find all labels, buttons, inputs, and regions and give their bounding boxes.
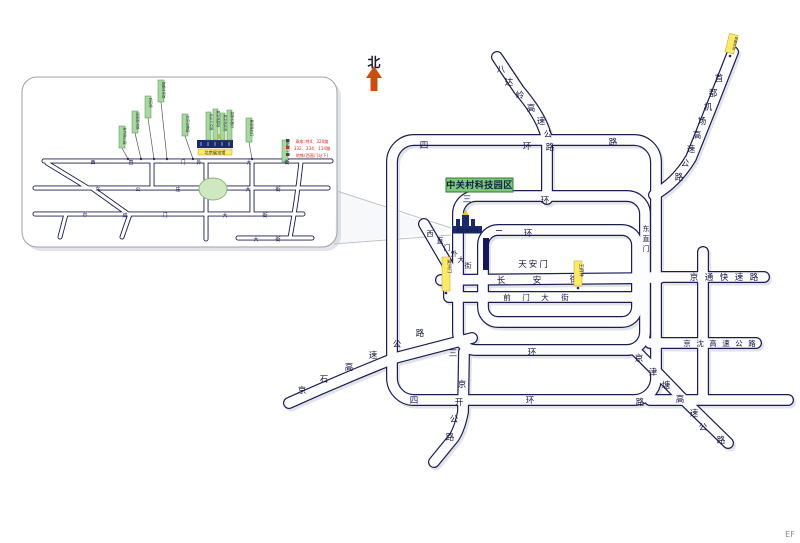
metro-icon bbox=[286, 153, 290, 156]
tiananmen-label: 天安门 bbox=[518, 259, 550, 270]
road-label-char: 路 bbox=[717, 435, 726, 446]
street-char: 车 bbox=[95, 186, 100, 193]
landmark-tag-label: 白石桥 bbox=[149, 98, 154, 109]
road-label-char: 环 bbox=[528, 348, 537, 358]
road-label-char: 高 bbox=[676, 394, 685, 405]
street-char: 街 bbox=[275, 186, 280, 193]
road-label-char: 津 bbox=[649, 367, 658, 378]
legend-line: 332、334、114路 bbox=[294, 145, 331, 152]
street-char: 庄 bbox=[175, 186, 180, 193]
street-char: 大 bbox=[245, 186, 250, 193]
road-label-char: 石 bbox=[320, 375, 329, 385]
road-label-char: 门 bbox=[522, 293, 530, 302]
road-label-char: 外 bbox=[451, 249, 458, 258]
road-label-char: 街 bbox=[561, 292, 569, 302]
road-label-char: 东 bbox=[643, 224, 650, 233]
venue-building bbox=[456, 219, 460, 226]
road-label-char: 直 bbox=[437, 236, 444, 245]
road-label-char: 前 bbox=[503, 292, 511, 302]
road-label-char: 京 bbox=[683, 338, 691, 348]
street-char: 街 bbox=[284, 159, 289, 166]
corner-mark: EF bbox=[785, 530, 795, 539]
road-label-char: 公 bbox=[699, 423, 708, 433]
road-label-char: 开 bbox=[455, 398, 464, 408]
landmark-tag-label: 展览路北口 bbox=[250, 120, 255, 137]
road-label-char: 四 bbox=[410, 396, 419, 406]
main-roads bbox=[289, 52, 790, 465]
road-label-char: 门 bbox=[643, 244, 650, 253]
road-label-char: 高 bbox=[527, 103, 536, 114]
road-label-char: 路 bbox=[546, 142, 555, 153]
compass: 北 bbox=[366, 56, 382, 91]
venue-building bbox=[462, 215, 469, 226]
road-label-char: 公 bbox=[450, 415, 459, 425]
road-label-char: 大 bbox=[458, 255, 465, 264]
street-char: 西 bbox=[90, 160, 95, 166]
landmark-tag-label: 莫斯科餐厅 bbox=[230, 112, 235, 130]
road-label-char: 大 bbox=[541, 292, 549, 302]
road-label-char: 速 bbox=[722, 339, 730, 348]
road-label-char: 京 bbox=[690, 272, 699, 283]
street-char: 公 bbox=[135, 187, 140, 193]
road-label-char: 场 bbox=[698, 117, 707, 127]
road-label-char: 三 bbox=[463, 195, 472, 205]
street-char: 阜 bbox=[82, 212, 87, 219]
road-label-char: 都 bbox=[709, 89, 718, 99]
road-label-char: 首 bbox=[715, 73, 724, 84]
station-tag-label: 王府井 bbox=[578, 264, 585, 278]
legend-line: 地铁(西直门站下) bbox=[296, 152, 329, 159]
road-label-char: 京 bbox=[635, 353, 644, 364]
road-label-char: 西 bbox=[427, 230, 434, 238]
venue-label-text: 北京展览馆 bbox=[456, 227, 479, 234]
landmark-tag-label: 北京动物园 bbox=[186, 116, 191, 134]
bus-icon bbox=[286, 146, 290, 149]
street-char: 成 bbox=[122, 212, 127, 219]
road-label-char: 三 bbox=[449, 349, 458, 359]
legend-line: 乘车:特4、320路 bbox=[295, 138, 329, 145]
inset-venue-cluster-tags: 北京天文馆 展览馆剧场 展览馆宾馆 莫斯科餐厅 bbox=[206, 109, 235, 140]
road-label-char: 高 bbox=[693, 130, 702, 141]
road-label-char: 速 bbox=[690, 409, 699, 419]
street-char: 街 bbox=[275, 236, 280, 243]
street-char: 大 bbox=[253, 236, 258, 243]
road-label-char: 沈 bbox=[696, 338, 704, 348]
road-label-char: 路 bbox=[636, 397, 645, 408]
road-label-char: 塘 bbox=[662, 380, 671, 391]
road-label-char: 速 bbox=[687, 145, 696, 155]
road-label-char: 岭 bbox=[516, 90, 525, 101]
road-label-char: 高 bbox=[345, 362, 354, 373]
beijing-road-map: 北京展览馆 紫竹院公园 国家图书馆 白石桥 首都体育馆 北京动物园 北京天文馆 … bbox=[0, 0, 800, 543]
landmark-tag-label: 国家图书馆 bbox=[136, 113, 141, 131]
road-label-char: 直 bbox=[643, 234, 650, 243]
road-label-char: 公 bbox=[681, 159, 690, 169]
road-label-char: 速 bbox=[735, 273, 744, 283]
road-label-char: 路 bbox=[750, 272, 759, 283]
zone-label: 中关村科技园区 bbox=[446, 178, 513, 192]
road-label-char: 路 bbox=[748, 338, 756, 348]
street-char: 街 bbox=[262, 212, 267, 219]
road-label-char: 快 bbox=[720, 272, 729, 283]
street-char: 直 bbox=[128, 159, 133, 166]
road-label-char: 路 bbox=[446, 432, 455, 443]
road-label-char: 环 bbox=[526, 396, 535, 406]
street-char: 门 bbox=[180, 159, 185, 166]
road-label-char: 环 bbox=[523, 142, 532, 152]
road-label-char: 公 bbox=[544, 130, 553, 140]
street-char: 外 bbox=[196, 159, 201, 166]
road-label-char: 京 bbox=[458, 379, 467, 390]
road-label-char: 机 bbox=[704, 102, 713, 113]
road-label-char: 安 bbox=[533, 275, 542, 286]
road-label-char: 通 bbox=[705, 272, 714, 283]
road-label-char: 公 bbox=[393, 340, 402, 350]
street-char: 大 bbox=[246, 159, 251, 166]
road-label-char: 长 bbox=[497, 275, 506, 286]
main-roads-fill bbox=[289, 52, 788, 462]
road-label-char: 四 bbox=[420, 141, 429, 151]
road-label-char: 路 bbox=[416, 328, 425, 339]
road-label-char: 路 bbox=[675, 172, 684, 183]
landmark-tag-label: 紫竹院公园 bbox=[123, 128, 128, 146]
zone-label-text: 中关村科技园区 bbox=[446, 179, 513, 191]
inset-park-oval bbox=[199, 178, 227, 200]
landmark-tag-label: 首都体育馆 bbox=[162, 82, 167, 100]
road-label-char: 公 bbox=[735, 339, 743, 348]
bus-icon bbox=[286, 139, 290, 142]
road-label-char: 京 bbox=[298, 385, 307, 396]
road-label-char: 门 bbox=[444, 243, 451, 252]
station-tag-label: 复兴门 bbox=[446, 260, 453, 274]
road-label-char: 八 bbox=[497, 65, 506, 75]
road-label-char: 路 bbox=[609, 137, 618, 148]
road-label-char: 达 bbox=[505, 77, 514, 88]
venue-building bbox=[471, 219, 475, 226]
road-label-char: 环 bbox=[541, 196, 550, 206]
road-label-char: 速 bbox=[369, 351, 378, 361]
inset-venue-name: 北京展览馆 bbox=[205, 149, 226, 156]
road-label-char: 街 bbox=[465, 261, 472, 270]
road-label-char: 环 bbox=[524, 229, 533, 239]
road-label-char: 速 bbox=[537, 117, 546, 127]
street-char: 大 bbox=[222, 212, 227, 219]
road-label-char: 高 bbox=[709, 338, 717, 348]
street-char: 门 bbox=[162, 212, 167, 219]
expressway-labels: 八 达 岭 高 速 公 路 首 都 机 场 高 速 公 路 京 通 快 速 路 … bbox=[298, 65, 759, 446]
road-label-char: 二 bbox=[495, 229, 504, 239]
